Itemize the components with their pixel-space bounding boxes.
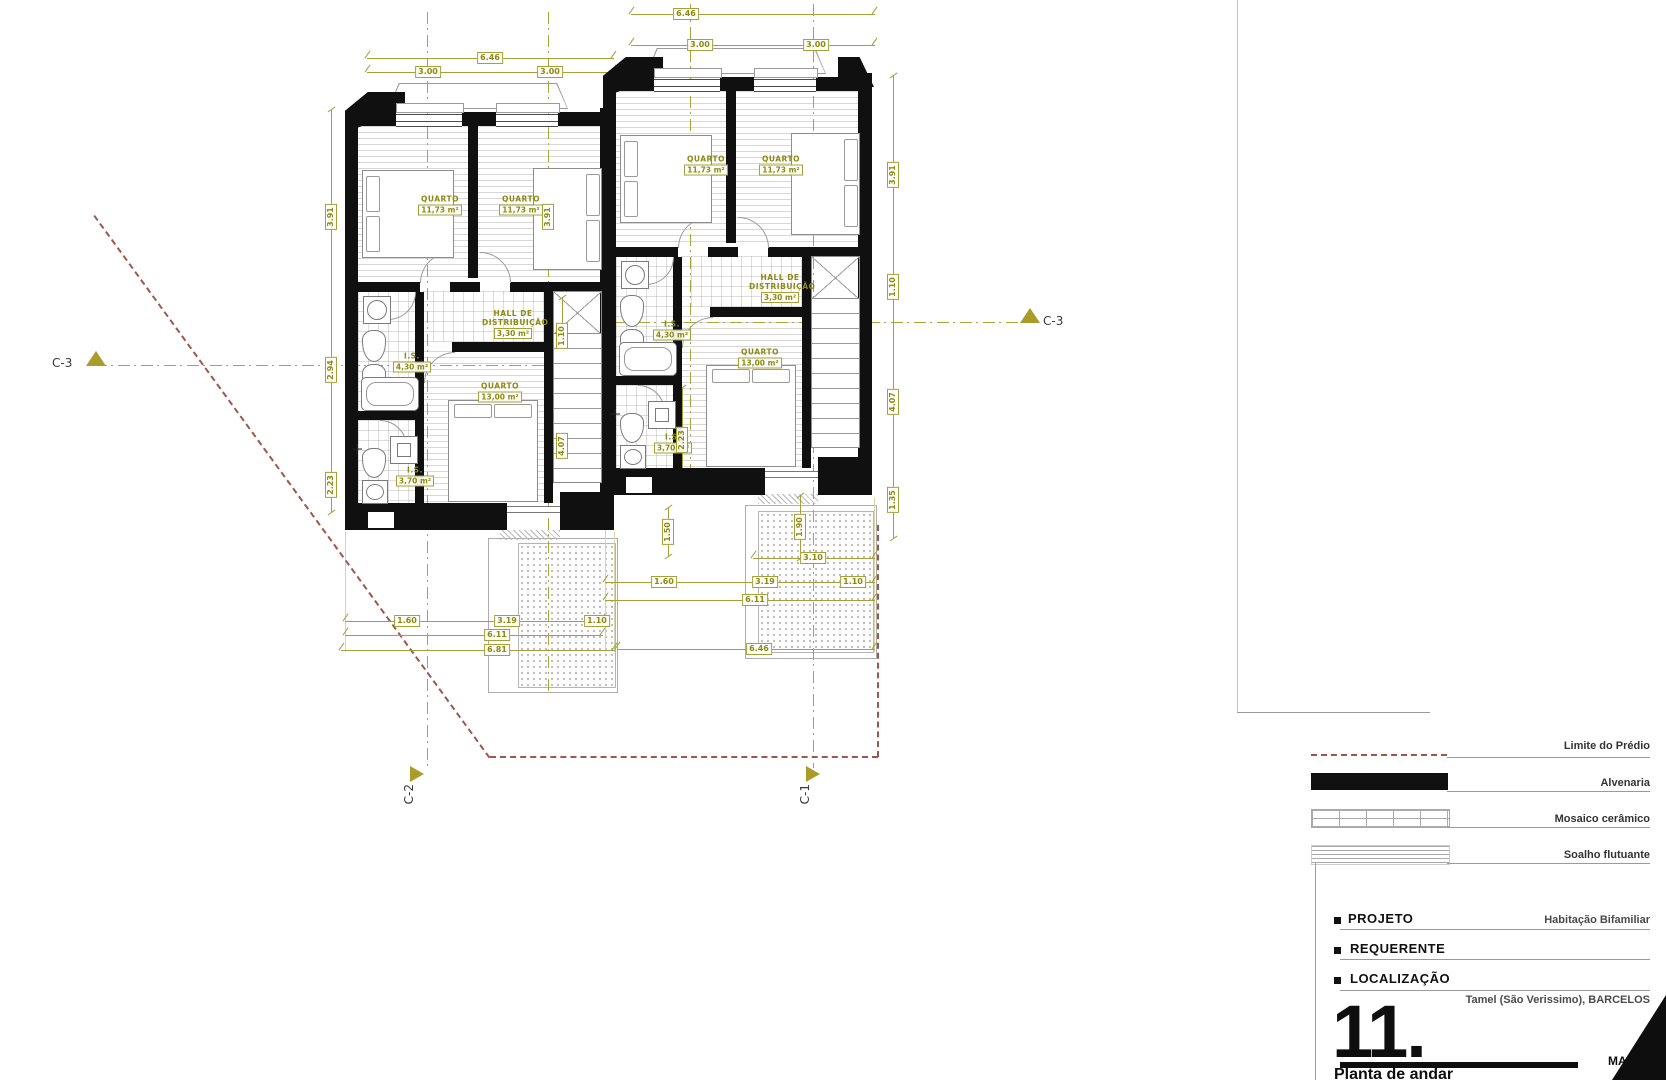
legend-rule: [1447, 791, 1650, 792]
dim-label: 3.91: [325, 204, 337, 230]
dim-line: [345, 635, 603, 636]
sheet-number: 11.: [1332, 1002, 1425, 1063]
dim-label: 6.81: [484, 644, 510, 656]
valve-symbol: [352, 444, 362, 454]
dim-label: 3.00: [687, 39, 713, 51]
title-rule: [1340, 959, 1650, 960]
wall-notch: [626, 477, 652, 493]
panel-divider: [1237, 712, 1430, 713]
dim-label: 1.10: [840, 576, 866, 588]
projeto-label: PROJETO: [1348, 911, 1413, 926]
legend-rule: [1447, 827, 1650, 828]
shower: [648, 401, 676, 429]
window-sill: [396, 103, 464, 113]
shower: [390, 436, 418, 464]
dim-label: 1.35: [887, 487, 899, 513]
dim-label: 4.07: [556, 433, 568, 459]
dim-label: 1.60: [651, 576, 677, 588]
pillow: [712, 369, 750, 383]
dim-label: 2.23: [325, 472, 337, 498]
extension-line: [614, 532, 615, 652]
dim-label: 6.11: [484, 629, 510, 641]
wall-party: [603, 77, 616, 495]
room-label-is-2: I.S. 3,70 m²: [384, 466, 446, 487]
section-marker-c1-label: C-1: [798, 784, 812, 804]
sheet-title: Planta de andar: [1334, 1066, 1453, 1080]
pillow: [844, 139, 858, 181]
dim-label: 3.91: [542, 204, 554, 230]
title-block-border: [1315, 863, 1316, 1080]
section-marker-c3-right-label: C-3: [1043, 314, 1063, 328]
architectural-drawing-sheet: QUARTO 11,73 m² QUARTO 11,73 m² HALL DE …: [0, 0, 1666, 1080]
patio-door: [507, 506, 560, 513]
room-label-is-1: I.S. 4,30 m²: [381, 352, 443, 373]
dim-line: [367, 72, 614, 73]
dim-label: 6.46: [746, 643, 772, 655]
window: [654, 79, 720, 92]
panel-divider: [1237, 0, 1238, 712]
wall-pier: [462, 112, 496, 126]
window: [396, 114, 462, 127]
legend-rule: [1447, 863, 1650, 864]
dim-label: 3.91: [887, 162, 899, 188]
section-marker-c3-left-arrow-icon: [86, 351, 106, 366]
dim-label: 3.10: [800, 552, 826, 564]
title-rule: [1340, 929, 1650, 930]
wall: [358, 411, 424, 420]
dim-label: 6.11: [742, 594, 768, 606]
window-sill: [496, 103, 560, 113]
section-marker-c1-arrow-icon: [806, 766, 820, 782]
dim-label: 6.46: [673, 8, 699, 20]
wall: [450, 282, 480, 292]
stairs: [553, 333, 602, 483]
localizacao-value: Tamel (São Verissimo), BARCELOS: [1400, 994, 1650, 1006]
stairs: [811, 298, 860, 448]
pillow: [454, 404, 492, 418]
dim-label: 1.60: [394, 615, 420, 627]
stair-void: [811, 256, 860, 300]
room-label-hall: HALL DE DISTRIBUIÇÃO 3,30 m²: [749, 273, 811, 303]
pillow: [494, 404, 532, 418]
legend-item-alvenaria: Alvenaria: [1450, 777, 1650, 789]
legend-swatch-mosaico: [1311, 809, 1450, 828]
wall: [710, 307, 802, 317]
window: [496, 114, 558, 127]
dim-label: 1.10: [887, 274, 899, 300]
washbasin: [363, 296, 391, 324]
dim-label: 2.94: [325, 357, 337, 383]
valve-symbol: [610, 409, 620, 419]
wall: [708, 247, 738, 257]
pillow: [752, 369, 790, 383]
bathtub: [361, 377, 419, 411]
dim-line: [345, 621, 603, 622]
section-marker-c3-left-label: C-3: [52, 356, 72, 370]
legend-swatch-limite: [1311, 754, 1447, 756]
pillow: [586, 174, 600, 216]
legend-item-limite: Limite do Prédio: [1450, 740, 1650, 752]
room-label-hall: HALL DE DISTRIBUIÇÃO 3,30 m²: [482, 309, 544, 339]
dim-label: 1.10: [556, 323, 568, 349]
bullet-icon: [1334, 947, 1341, 954]
room-label-is-2: I.S. 3,70 m²: [642, 433, 704, 454]
extension-line: [874, 497, 875, 652]
wall: [616, 376, 682, 385]
threshold-hatch: [500, 530, 560, 540]
dim-label: 3.00: [537, 66, 563, 78]
dim-label: 1.50: [662, 519, 674, 545]
extension-line: [345, 532, 346, 652]
dim-line: [341, 650, 615, 651]
room-label-is-1: I.S. 4,30 m²: [641, 320, 703, 341]
wall-corner: [818, 457, 872, 495]
section-marker-c2-arrow-icon: [410, 766, 424, 782]
window-sill: [654, 68, 722, 78]
section-marker-c2-label: C-2: [402, 784, 416, 804]
pillow: [624, 181, 638, 217]
legend-item-mosaico: Mosaico cerâmico: [1450, 813, 1650, 825]
dim-line: [631, 14, 875, 15]
bullet-icon: [1334, 917, 1341, 924]
room-label-quarto-3: QUARTO 13,00 m²: [455, 382, 545, 403]
wall: [356, 112, 396, 126]
wall-corner: [560, 492, 614, 530]
dim-label: 3.19: [752, 576, 778, 588]
bathtub: [619, 342, 677, 376]
room-label-quarto-1: QUARTO 11,73 m²: [395, 195, 485, 216]
dim-label: 3.00: [803, 39, 829, 51]
dim-label: 1.90: [794, 514, 806, 540]
projeto-value: Habitação Bifamiliar: [1430, 914, 1650, 926]
pillow: [366, 176, 380, 212]
section-marker-c3-right-arrow-icon: [1020, 308, 1040, 323]
dim-line: [331, 110, 332, 512]
wall: [858, 73, 872, 495]
property-boundary-bottom: [490, 756, 878, 758]
room-label-quarto-3: QUARTO 13,00 m²: [715, 348, 805, 369]
dim-label: 6.46: [477, 52, 503, 64]
dim-label: 3.19: [494, 615, 520, 627]
wall-notch: [368, 512, 394, 528]
legend-swatch-alvenaria: [1311, 773, 1448, 790]
pillow: [366, 216, 380, 252]
localizacao-label: LOCALIZAÇÃO: [1350, 971, 1450, 986]
wall: [452, 342, 544, 352]
pillow: [624, 141, 638, 177]
room-label-quarto-2: QUARTO 11,73 m²: [736, 155, 826, 176]
requerente-label: REQUERENTE: [1350, 941, 1445, 956]
washbasin: [621, 261, 649, 289]
dim-line: [631, 45, 875, 46]
bullet-icon: [1334, 977, 1341, 984]
dim-line: [605, 600, 875, 601]
dim-line: [893, 76, 894, 538]
threshold-hatch: [758, 494, 818, 504]
wall: [614, 77, 654, 91]
dim-label: 4.07: [887, 389, 899, 415]
dim-label: 3.00: [415, 66, 441, 78]
dim-line: [605, 582, 875, 583]
window-sill: [754, 68, 818, 78]
wall-pier: [720, 77, 754, 91]
pillow: [844, 185, 858, 227]
wall: [345, 112, 358, 530]
wall: [616, 247, 678, 257]
legend-swatch-soalho: [1311, 845, 1450, 865]
dim-label: 1.10: [584, 615, 610, 627]
legend-rule: [1447, 757, 1650, 758]
wall: [358, 282, 420, 292]
dim-label: 2.23: [676, 427, 688, 453]
sheet-date: MAI/2023: [1570, 1054, 1660, 1068]
window: [754, 79, 816, 92]
legend-item-soalho: Soalho flutuante: [1450, 849, 1650, 861]
pillow: [586, 220, 600, 262]
patio-door: [765, 471, 818, 478]
